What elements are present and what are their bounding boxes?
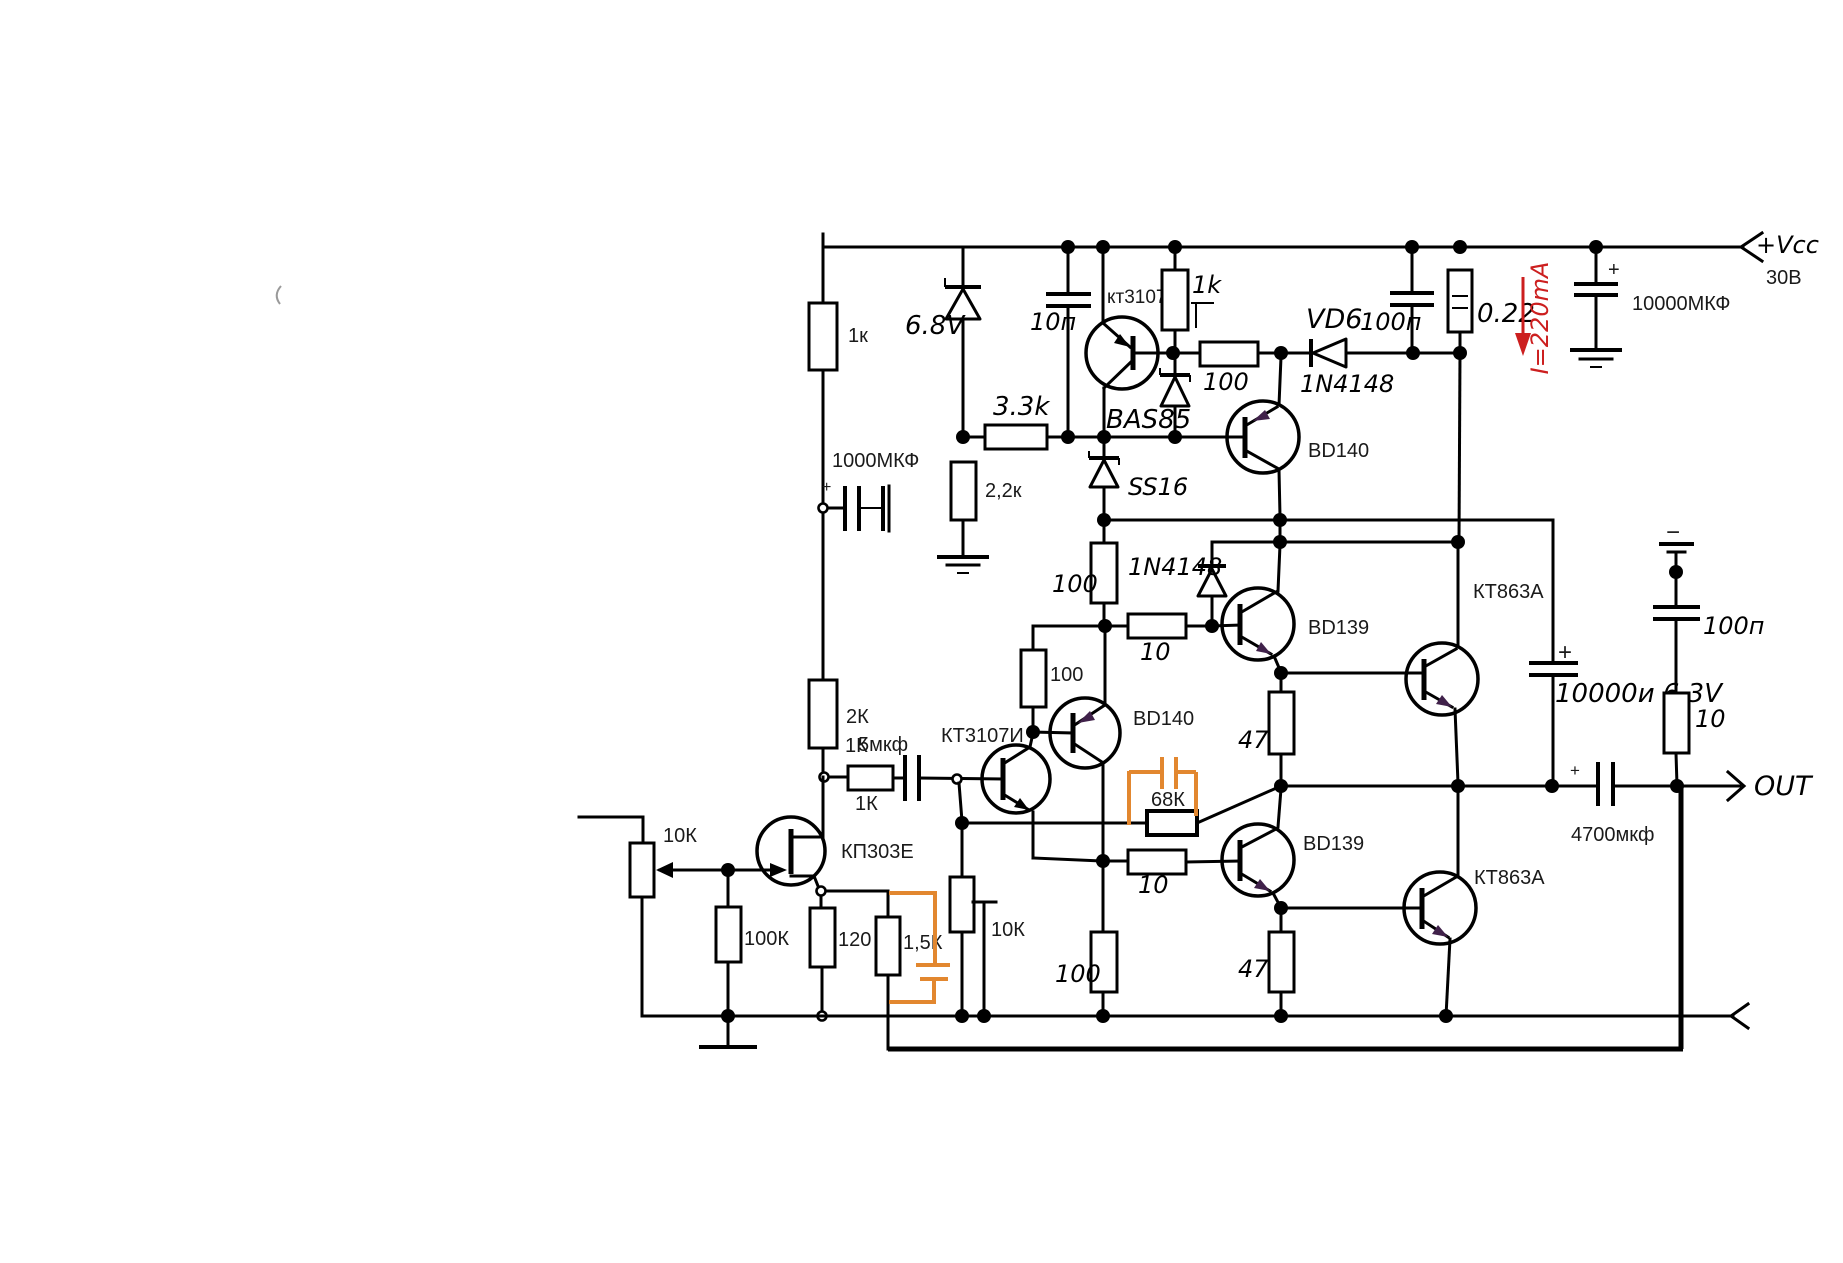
cap-10000mkf-plus: + <box>1608 259 1620 281</box>
kt3107i-upper-lead <box>1003 747 1030 764</box>
kt863a-1-collector <box>1424 649 1456 667</box>
wire <box>1455 709 1458 783</box>
wire <box>1278 545 1280 591</box>
kt863a-2-section: КТ863А 47 <box>1238 788 1545 1016</box>
ss16-triangle <box>1090 460 1118 487</box>
resistor-10k-2 <box>950 877 974 932</box>
kt3107-collector <box>1104 360 1133 388</box>
bd139-1-label: BD139 <box>1308 617 1369 639</box>
kt863a-2-label: КТ863А <box>1474 867 1545 889</box>
bd140-1-label: BD140 <box>1308 440 1369 462</box>
kt863a-1-emitter-arrow <box>1436 695 1452 707</box>
resistor-10-mid <box>1128 614 1186 638</box>
bd139-1-section: BD139 47 <box>1212 545 1369 786</box>
return-terminal-arrow <box>1731 1004 1748 1028</box>
bas85-label: BAS85 <box>1106 405 1191 435</box>
jfet-gate-arrow <box>770 863 787 877</box>
wire <box>1279 470 1280 516</box>
resistor-1k-trim-value: 1k <box>1192 271 1222 299</box>
zobel-branch: − 100п 10 <box>1653 519 1765 785</box>
bd139-2-label: BD139 <box>1303 833 1364 855</box>
resistor-10k-2-value: 10К <box>991 919 1025 941</box>
bd140-2-collector <box>1073 743 1102 762</box>
kt3107i-label: КТ3107И <box>941 725 1024 747</box>
stray-mark <box>277 286 281 304</box>
resistor-2k <box>809 680 837 748</box>
resistor-1k-series <box>848 766 893 790</box>
junction-dot <box>1274 779 1288 793</box>
junction-circle <box>817 887 826 896</box>
potentiometer-10k <box>630 843 654 897</box>
resistor-100-mid-value: 100 <box>1052 570 1098 598</box>
wire <box>1278 789 1281 827</box>
mid-network: 100 100 10 1N4148 <box>1021 520 1226 739</box>
bd140-1-collector <box>1245 450 1277 468</box>
wire <box>1446 939 1450 1016</box>
vd6-triangle <box>1313 339 1346 367</box>
resistor-100-top-value: 100 <box>1203 368 1249 396</box>
resistor-100-top <box>1200 342 1258 366</box>
cap-10000u-section: + 10000и 6.3V <box>1529 520 1724 785</box>
resistor-47-1-value: 47 <box>1238 726 1269 754</box>
top-row-network: 100 VD6 1N4148 100п 0.22 I=220mA + 10000… <box>1173 247 1730 542</box>
bd140-2-label: BD140 <box>1133 708 1194 730</box>
orange-wire <box>889 981 934 1002</box>
junction-circle <box>819 504 828 513</box>
cap-10000mkf-value: 10000МКФ <box>1632 293 1730 315</box>
bd139-1-base <box>1212 625 1240 626</box>
resistor-100k-value: 100К <box>744 928 789 950</box>
resistor-100k <box>716 907 741 962</box>
cap-5mkf-value: 5мкф <box>858 734 908 756</box>
resistor-68k-value: 68К <box>1151 789 1185 811</box>
potentiometer-10k-value: 10К <box>663 825 697 847</box>
zener-value: 6.8V <box>905 311 966 341</box>
ss16-label: SS16 <box>1128 473 1188 501</box>
junction-dot <box>1274 1009 1288 1023</box>
vd6-ref: VD6 <box>1306 304 1362 335</box>
wire <box>1459 353 1460 542</box>
junction-dot <box>1439 1009 1453 1023</box>
junction-dot <box>1453 240 1467 254</box>
bd139-2-collector <box>1240 829 1276 848</box>
out-label: OUT <box>1754 771 1814 802</box>
resistor-2k2 <box>951 462 976 520</box>
kt3107-label: кт3107 <box>1107 287 1167 308</box>
wire <box>959 783 962 821</box>
bd140-2-base <box>1033 732 1073 733</box>
current-annotation: I=220mA <box>1526 262 1554 375</box>
wire <box>1279 357 1281 405</box>
kt3107i-emitter-arrow <box>1014 798 1029 810</box>
resistor-100-low-value: 100 <box>1055 960 1101 988</box>
cap-4700-value: 4700мкф <box>1571 824 1654 846</box>
resistor-10-right <box>1664 693 1689 753</box>
vcc-voltage: 30В <box>1766 267 1802 289</box>
kt863a-2-collector <box>1422 876 1458 897</box>
junction-dot <box>955 1009 969 1023</box>
junction-dot <box>1168 430 1182 444</box>
minus-mark: − <box>1666 519 1680 546</box>
resistor-1k-left-value: 1к <box>848 325 868 347</box>
kt863a-1-label: КТ863А <box>1473 581 1544 603</box>
resistor-1k-left <box>809 303 837 370</box>
wire <box>1033 858 1103 861</box>
resistor-120 <box>810 908 835 967</box>
kt863a-1-section: КТ863А <box>1281 545 1544 783</box>
resistor-2k2-value: 2,2к <box>985 480 1022 502</box>
bas85-triangle <box>1161 377 1189 406</box>
resistor-47-2-value: 47 <box>1238 955 1269 983</box>
vcc-label: +Vcc <box>1756 231 1819 259</box>
bd139-1-collector <box>1240 592 1276 613</box>
cap-10000u-plus: + <box>1558 639 1572 666</box>
resistor-10-right-value: 10 <box>1695 705 1726 733</box>
resistor-120-value: 120 <box>838 929 871 951</box>
wire <box>1186 861 1240 862</box>
mid-bus-rows <box>1097 513 1553 549</box>
resistor-68k <box>1147 811 1197 835</box>
resistor-3k3-value: 3.3k <box>993 392 1050 422</box>
cap-1000mkf-plus: + <box>822 479 831 496</box>
bd139-2-emitter-arrow <box>1254 879 1270 891</box>
cap-4700-plus: + <box>1570 761 1580 780</box>
cap-1000mkf-value: 1000МКФ <box>832 450 919 472</box>
resistor-47-1 <box>1269 692 1294 754</box>
amplifier-schematic: +Vcc 30В 1к 1000МКФ + 2К 1К 1К 5мкф <box>0 0 1843 1263</box>
resistor-47-2 <box>1269 932 1294 992</box>
zener-bias-network: 6.8V 3.3k 2,2к <box>905 247 1068 573</box>
wiper-arrow <box>656 862 673 878</box>
resistor-1k-trim <box>1162 270 1188 330</box>
resistor-10-mid-value: 10 <box>1140 638 1171 666</box>
junction-dot <box>977 1009 991 1023</box>
d1n4148-mid-label: 1N4148 <box>1128 553 1222 581</box>
kp303e-label: КП303Е <box>841 841 914 863</box>
junction-dot <box>1096 1009 1110 1023</box>
cap-100p-right-value: 100п <box>1703 612 1765 640</box>
vd6-part: 1N4148 <box>1300 370 1394 398</box>
vcc-rail: +Vcc 30В <box>823 231 1819 289</box>
schematic-canvas: +Vcc 30В 1к 1000МКФ + 2К 1К 1К 5мкф <box>0 0 1843 1263</box>
resistor-1k-series-value: 1К <box>855 793 878 815</box>
resistor-10-low-value: 10 <box>1138 871 1169 899</box>
wire-diagonal <box>1197 786 1281 823</box>
bd139-1-emitter-arrow <box>1256 642 1271 654</box>
resistor-3k3 <box>985 425 1047 449</box>
resistor-1k5 <box>876 917 900 975</box>
resistor-100-vert2 <box>1021 650 1046 707</box>
resistor-100-vert2-value: 100 <box>1050 664 1083 686</box>
resistor-0r22 <box>1448 270 1472 332</box>
resistor-2k-value: 2К <box>846 706 869 728</box>
junction-dot <box>1545 779 1559 793</box>
